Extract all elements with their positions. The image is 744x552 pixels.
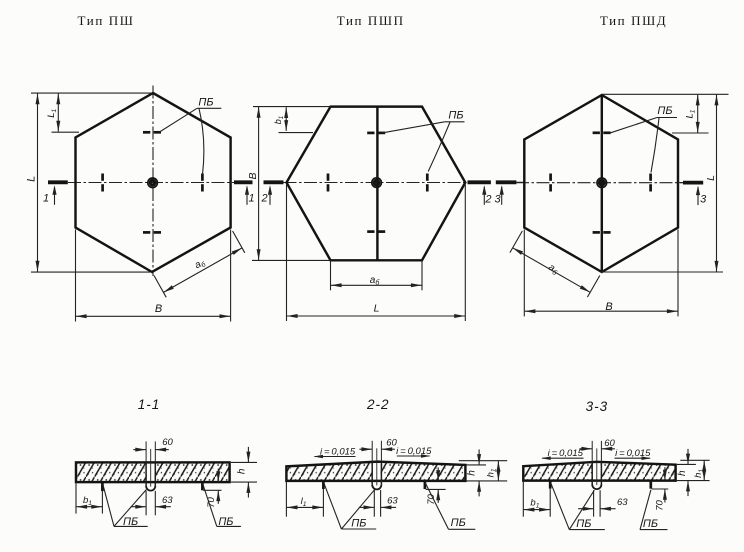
svg-text:L: L	[705, 175, 717, 181]
svg-text:1: 1	[43, 193, 49, 205]
svg-text:i = 0,015: i = 0,015	[548, 448, 584, 459]
svg-text:70: 70	[654, 500, 665, 511]
svg-text:B: B	[155, 303, 162, 315]
svg-text:2: 2	[260, 193, 267, 205]
svg-text:ПБ: ПБ	[643, 518, 658, 530]
svg-text:ПБ: ПБ	[198, 97, 213, 109]
svg-text:L: L	[374, 302, 380, 314]
svg-text:i = 0,015: i = 0,015	[396, 446, 432, 457]
svg-text:L: L	[26, 176, 38, 182]
svg-text:3: 3	[495, 193, 502, 205]
svg-text:h: h	[237, 468, 248, 474]
svg-text:1: 1	[248, 193, 254, 205]
svg-text:1-1: 1-1	[138, 397, 161, 412]
svg-text:3-3: 3-3	[586, 399, 609, 414]
svg-text:Тип ПШП: Тип ПШП	[337, 13, 405, 28]
svg-text:ПБ: ПБ	[576, 518, 591, 530]
svg-text:Тип ПШД: Тип ПШД	[600, 13, 667, 28]
svg-text:ПБ: ПБ	[451, 517, 466, 529]
svg-text:ПБ: ПБ	[657, 105, 672, 117]
svg-text:60: 60	[604, 438, 615, 449]
svg-text:B: B	[247, 172, 259, 179]
svg-text:2: 2	[484, 193, 491, 205]
svg-text:Тип ПШ: Тип ПШ	[78, 13, 135, 28]
svg-text:h: h	[677, 470, 688, 476]
svg-text:60: 60	[162, 437, 173, 448]
svg-text:63: 63	[617, 497, 628, 508]
svg-text:2-2: 2-2	[366, 397, 390, 412]
svg-text:63: 63	[162, 495, 173, 506]
svg-text:ПБ: ПБ	[351, 518, 366, 530]
svg-text:ПБ: ПБ	[448, 110, 463, 122]
svg-text:B: B	[605, 301, 612, 313]
svg-text:63: 63	[387, 495, 398, 506]
svg-text:h: h	[467, 470, 478, 476]
svg-text:3: 3	[700, 193, 707, 205]
